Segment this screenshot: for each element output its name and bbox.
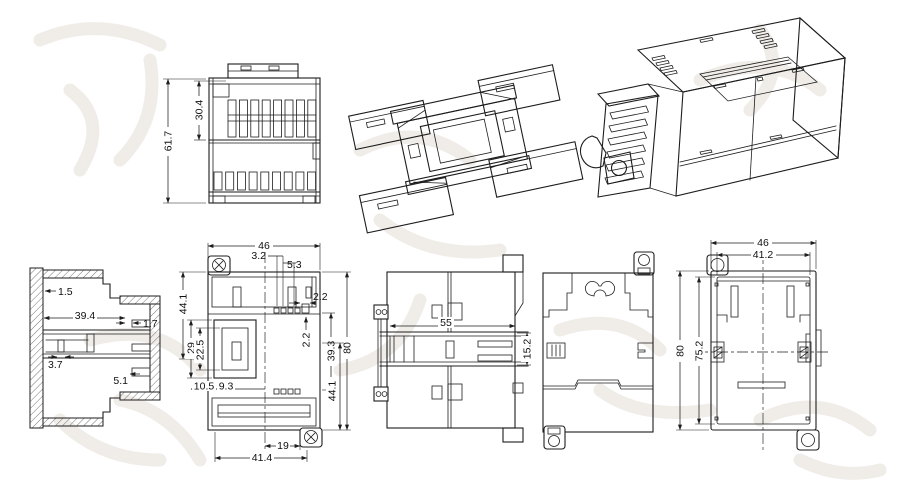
- dim-rear-offsets: 3.2 5.3: [251, 250, 301, 306]
- dim-label: 1.5: [58, 286, 73, 298]
- view-front-cover: [543, 252, 654, 449]
- dim-rear-latch-widths: 10.5 9.3: [191, 381, 265, 393]
- open-slot-left: [731, 286, 738, 317]
- view-assembled-isometric: [580, 18, 845, 197]
- end-elevation-terminal-slots: [228, 100, 316, 137]
- dim-label: 46: [757, 237, 769, 249]
- iso-cover-clip: [757, 77, 763, 81]
- drawing-sheet: 61.7 30.4: [0, 0, 900, 500]
- dim-label: 19: [277, 440, 289, 452]
- dim-latch-3-7: 3.7: [48, 357, 74, 371]
- dim-rear-tab-gap-v: 2.2: [301, 317, 313, 347]
- end-elevation-vents: [214, 172, 316, 190]
- dim-label: 61.7: [163, 131, 175, 152]
- iso-terminal-block: [598, 84, 683, 197]
- dim-label: 15.2: [522, 339, 534, 360]
- open-bottom-slot: [738, 382, 785, 388]
- dim-label: 5.1: [113, 375, 128, 387]
- dim-label: 39.3: [326, 341, 338, 362]
- dim-label: 2.2: [313, 291, 328, 303]
- dim-label: 80: [675, 345, 687, 357]
- dim-label: 39.4: [75, 310, 96, 322]
- dim-side-rail-15-2: 15.2: [517, 333, 534, 365]
- open-slot-right: [787, 286, 794, 317]
- open-right-step: [816, 330, 821, 366]
- dim-label: 22.5: [195, 340, 207, 361]
- dim-label: 30.4: [194, 100, 206, 121]
- dim-label: 41.4: [252, 452, 273, 464]
- dim-label: 3.2: [251, 250, 266, 262]
- cover-top-screw-lug: [634, 252, 654, 275]
- dim-label: 9.3: [219, 381, 234, 393]
- dim-label: 2.2: [301, 333, 313, 348]
- end-elevation-lid: [228, 64, 298, 78]
- rear-din-latch: [214, 320, 256, 378]
- view-rear: 46 3.2 5.3 2.2 2.2 44.1: [177, 240, 354, 464]
- dim-label: 44.1: [327, 381, 339, 402]
- cover-bottom-screw-lug: [544, 426, 565, 449]
- dim-open-inner-height-75-2: 75.2: [693, 277, 715, 424]
- dim-rear-lug-offset-19: 19: [265, 432, 300, 452]
- dim-label: 3.7: [48, 359, 63, 371]
- view-open-front: 46 41.2 80 75.2: [674, 237, 830, 452]
- open-bottom-screw-lug: [797, 430, 819, 450]
- open-top-screw-lug: [707, 255, 728, 275]
- dim-inner-width-39-4: 39.4: [44, 310, 125, 322]
- dim-rear-tab-gap-h: 2.2: [289, 291, 328, 303]
- dim-label: 80: [342, 342, 354, 354]
- dim-label: 5.3: [287, 259, 302, 271]
- dim-label: 75.2: [694, 341, 706, 362]
- dim-rear-base-41-4: 41.4: [215, 432, 307, 464]
- view-end-elevation: 61.7 30.4: [162, 64, 320, 203]
- technical-drawing-canvas: 61.7 30.4: [0, 0, 900, 500]
- cover-spring-clip: [585, 281, 614, 296]
- dim-wall-1-5: 1.5: [45, 286, 73, 298]
- dim-label: 55: [440, 317, 452, 329]
- dim-label: 10.5: [194, 381, 215, 393]
- dim-label: 41.2: [753, 249, 774, 261]
- rear-body: [208, 252, 322, 452]
- dim-label: 44.1: [178, 294, 190, 315]
- iso-din-hook: [580, 136, 634, 184]
- dim-label: 1.7: [143, 318, 158, 330]
